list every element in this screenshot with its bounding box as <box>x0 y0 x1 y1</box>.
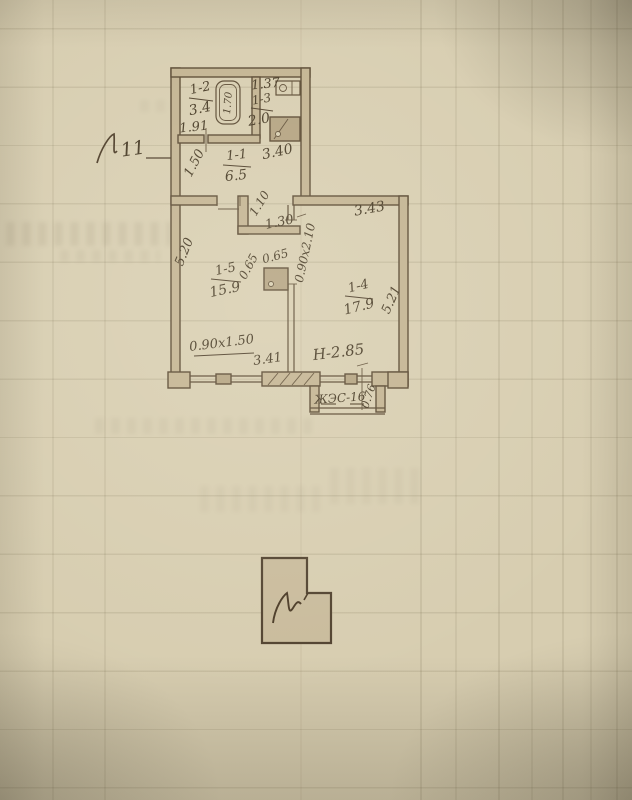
window-room15 <box>190 374 262 384</box>
dim-window15: 0.90x1.50 <box>188 332 255 355</box>
room-1-5-number: 1-5 <box>214 260 238 279</box>
vent-shaft-top <box>270 117 300 141</box>
room-1-3-number: 1-3 <box>251 90 273 107</box>
apartment-number-mark: 11 <box>97 134 171 163</box>
room-1-4-number: 1-4 <box>346 277 370 297</box>
tub-length-label: 1.70 <box>222 91 235 115</box>
floor-plan-drawing: 1.70 11 1-2 3.4 1.37 <box>0 0 632 800</box>
window-room14 <box>320 374 372 384</box>
bathtub-icon: 1.70 <box>216 81 240 124</box>
room-1-2-number: 1-2 <box>188 79 212 98</box>
room-1-2-area: 3.4 <box>187 99 212 119</box>
apartment-number: 11 <box>119 136 146 161</box>
dim-shaft-b: 0.65 <box>261 246 290 266</box>
building-footprint-stamp <box>262 558 331 643</box>
room-1-5-area: 15.9 <box>208 279 242 301</box>
dim-niche-depth: 1.10 <box>246 188 272 218</box>
room-1-1-area: 6.5 <box>224 167 248 185</box>
room-1-3-area: 2.0 <box>246 110 272 130</box>
room-1-4-area: 17.9 <box>342 295 376 318</box>
dim-hall-width: 1.50 <box>181 147 208 180</box>
dim-ceiling-height: Н-2.85 <box>311 340 365 364</box>
dim-room15-width: 3.41 <box>252 350 283 369</box>
vent-shaft-middle <box>264 268 288 290</box>
dim-hall-length: 3.40 <box>260 141 294 163</box>
dim-bath-width: 1.91 <box>179 119 209 137</box>
photographed-floor-plan-page: 1.70 11 1-2 3.4 1.37 <box>0 0 632 800</box>
room-1-1-number: 1-1 <box>226 147 248 164</box>
door-opening-room15 <box>217 196 240 209</box>
dim-shaft-a: 0.65 <box>236 252 261 282</box>
